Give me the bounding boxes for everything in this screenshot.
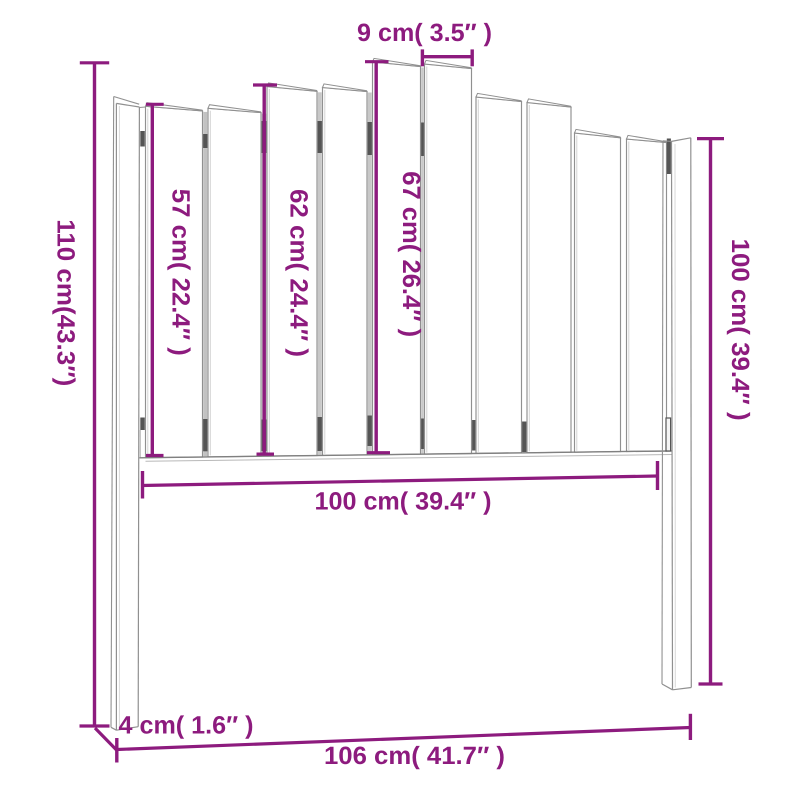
svg-text:9 cm( 3.5″ ): 9 cm( 3.5″ ) — [357, 19, 492, 47]
svg-text:110 cm(43.3″): 110 cm(43.3″) — [52, 219, 80, 386]
svg-text:100 cm( 39.4″ ): 100 cm( 39.4″ ) — [726, 239, 754, 421]
svg-text:57 cm( 22.4″ ): 57 cm( 22.4″ ) — [167, 189, 195, 356]
svg-text:106 cm( 41.7″ ): 106 cm( 41.7″ ) — [324, 742, 505, 770]
svg-text:100 cm( 39.4″ ): 100 cm( 39.4″ ) — [315, 488, 492, 516]
svg-text:67 cm( 26.4″ ): 67 cm( 26.4″ ) — [397, 171, 425, 337]
svg-text:62 cm( 24.4″ ): 62 cm( 24.4″ ) — [285, 189, 313, 357]
svg-text:4 cm( 1.6″ ): 4 cm( 1.6″ ) — [119, 712, 254, 740]
